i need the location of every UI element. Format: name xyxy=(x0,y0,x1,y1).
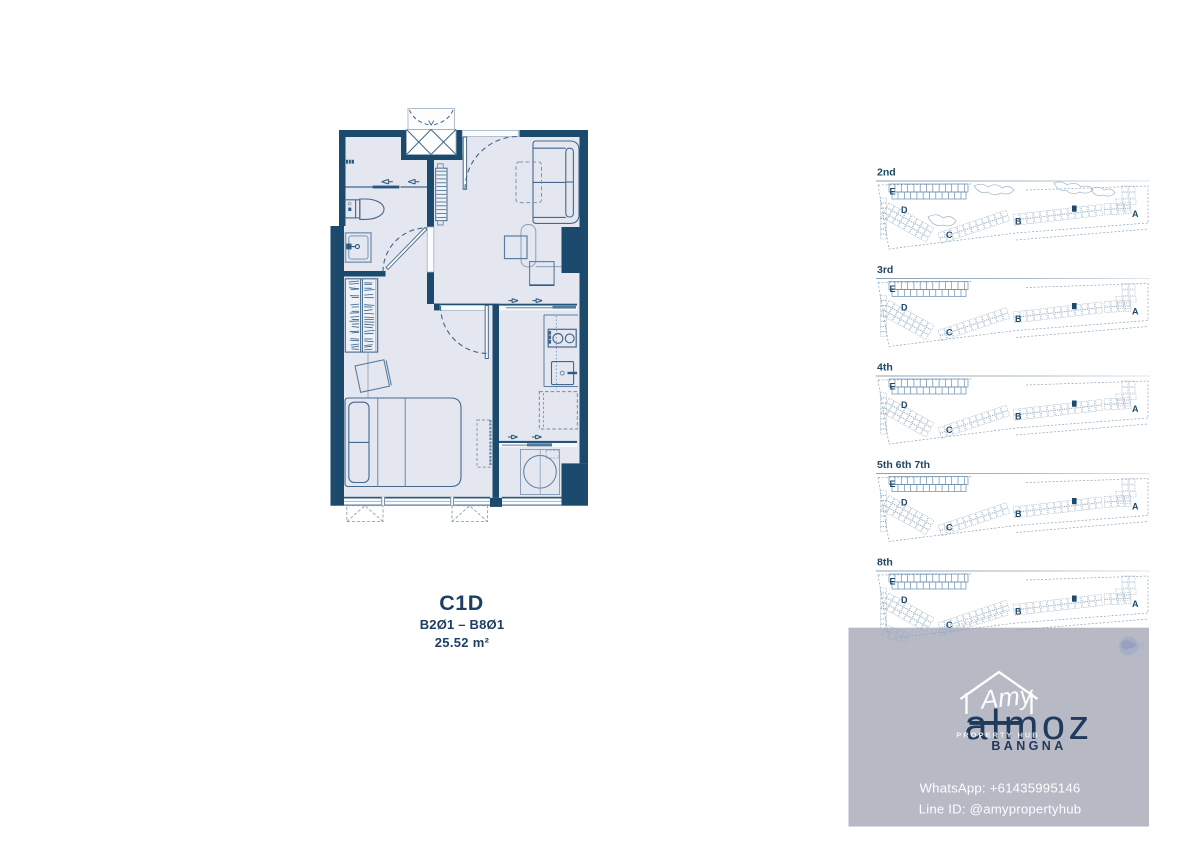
svg-text:C: C xyxy=(946,425,953,435)
svg-text:A: A xyxy=(1132,599,1139,609)
svg-text:4th: 4th xyxy=(877,362,893,374)
svg-text:D: D xyxy=(901,498,908,508)
svg-text:25.52 m²: 25.52 m² xyxy=(435,635,490,650)
svg-text:B: B xyxy=(1015,607,1022,617)
svg-text:BANGNA: BANGNA xyxy=(991,739,1066,753)
svg-text:D: D xyxy=(901,205,908,215)
svg-text:A: A xyxy=(1132,209,1139,219)
svg-text:C1D: C1D xyxy=(439,591,484,615)
svg-text:C: C xyxy=(946,523,953,533)
svg-text:8th: 8th xyxy=(877,557,893,569)
svg-text:A: A xyxy=(1132,502,1139,512)
svg-text:D: D xyxy=(901,303,908,313)
svg-text:E: E xyxy=(890,577,896,587)
svg-text:E: E xyxy=(890,479,896,489)
svg-text:2nd: 2nd xyxy=(877,167,896,179)
svg-text:B: B xyxy=(1015,217,1022,227)
svg-text:5th 6th 7th: 5th 6th 7th xyxy=(877,459,930,471)
svg-text:3rd: 3rd xyxy=(877,264,893,276)
svg-text:E: E xyxy=(890,284,896,294)
svg-text:A: A xyxy=(1132,307,1139,317)
svg-text:H: H xyxy=(1138,641,1144,651)
svg-text:D: D xyxy=(901,595,908,605)
svg-text:B: B xyxy=(1015,412,1022,422)
svg-text:E: E xyxy=(890,382,896,392)
svg-text:Line ID: @amypropertyhub: Line ID: @amypropertyhub xyxy=(919,802,1082,817)
svg-text:B2Ø1 – B8Ø1: B2Ø1 – B8Ø1 xyxy=(420,617,505,632)
svg-text:WhatsApp: +61435995146: WhatsApp: +61435995146 xyxy=(920,781,1081,796)
svg-text:B: B xyxy=(1015,509,1022,519)
svg-text:D: D xyxy=(901,400,908,410)
svg-text:E: E xyxy=(890,187,896,197)
svg-text:A: A xyxy=(1132,404,1139,414)
svg-text:C: C xyxy=(946,230,953,240)
svg-text:B: B xyxy=(1015,314,1022,324)
svg-text:C: C xyxy=(946,328,953,338)
